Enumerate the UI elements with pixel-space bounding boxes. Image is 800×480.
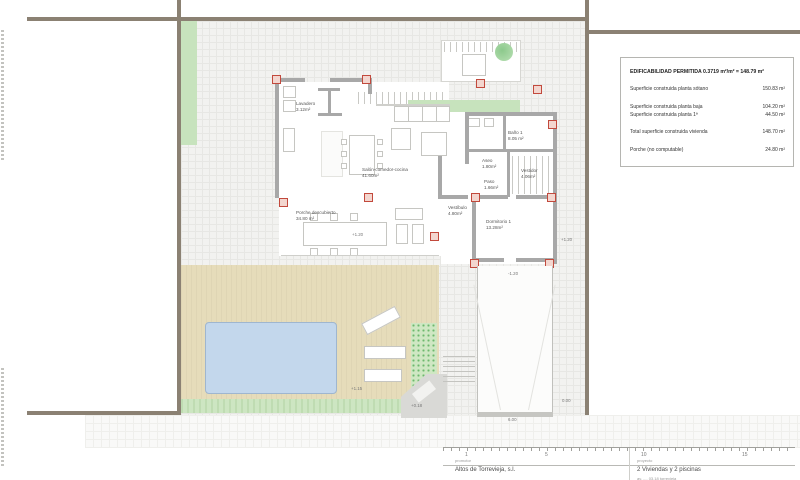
- house-wall: [440, 195, 468, 199]
- room-name: Vestidor: [521, 168, 538, 174]
- pillar-marker: [547, 193, 556, 202]
- info-label: Superficie construida planta baja: [630, 104, 703, 110]
- scale-tick-label: 15: [742, 452, 748, 458]
- chair: [341, 163, 347, 169]
- house-wall: [465, 112, 557, 116]
- room-label: Porche descubierto34.80 m²: [296, 210, 336, 221]
- pillar-marker: [272, 75, 281, 84]
- info-value: 24.80 m²: [765, 147, 785, 153]
- kitchen-island: [391, 128, 411, 150]
- room-area: 34.80 m²: [296, 216, 336, 222]
- planting-strip-left: [181, 21, 197, 145]
- house-wall: [553, 112, 557, 264]
- exterior-stairs: [443, 356, 475, 386]
- pillar-marker: [279, 198, 288, 207]
- info-value: 150.83 m²: [762, 86, 785, 92]
- info-row: Superficie construida planta 1ª44.50 m²: [630, 112, 785, 118]
- margin-stamp-top: [1, 28, 4, 160]
- info-row: Porche (no computable)24.80 m²: [630, 147, 785, 153]
- info-box-title: EDIFICABILIDAD PERMITIDA 0.3719 m²/m² = …: [630, 69, 785, 75]
- room-label: Baño 18.05 m²: [508, 130, 524, 141]
- room-name: Salón-comedor-cocina: [362, 167, 408, 173]
- bath-fixture: [484, 118, 494, 127]
- pillar-marker: [471, 193, 480, 202]
- info-label: Superficie construida planta 1ª: [630, 112, 698, 118]
- lounge-chair: [396, 224, 408, 244]
- room-name: Dormitorio 1: [486, 219, 511, 225]
- porch-edge: [281, 255, 439, 256]
- buildability-info-box: EDIFICABILIDAD PERMITIDA 0.3719 m²/m² = …: [620, 57, 794, 167]
- level-annotation: +1.15: [351, 386, 362, 391]
- room-label: Dormitorio 113.28m²: [486, 219, 511, 230]
- porch-table: [303, 222, 387, 246]
- floor-plan-sheet: Lavadero3.12m² Salón-comedor-cocina41.60…: [0, 0, 800, 480]
- info-row: Superficie construida planta sótano150.8…: [630, 86, 785, 92]
- info-value: 148.70 m²: [762, 129, 785, 135]
- boundary-wall: [181, 17, 589, 21]
- room-name: Porche descubierto: [296, 210, 336, 216]
- room-label: Vestíbulo4.80m²: [448, 205, 467, 216]
- room-name: Lavadero: [296, 101, 315, 107]
- room-area: 8.05 m²: [508, 136, 524, 142]
- margin-stamp-bottom: [1, 368, 4, 466]
- boundary-wall: [177, 0, 181, 415]
- level-annotation: +0.18: [411, 403, 422, 408]
- boundary-wall: [585, 0, 589, 415]
- lounge-table: [395, 208, 423, 220]
- info-row: Total superficie construida vivienda148.…: [630, 129, 785, 135]
- info-row: Superficie construida planta baja104.20 …: [630, 104, 785, 110]
- sofa: [421, 132, 447, 156]
- chair: [377, 139, 383, 145]
- chair: [377, 151, 383, 157]
- dryer: [283, 100, 296, 112]
- title-block-rule: [630, 465, 795, 466]
- room-label: Paso1.66m²: [484, 179, 498, 190]
- project-address: av. ..., 03.18 torrevieja: [637, 476, 676, 480]
- street-paving: [85, 415, 800, 448]
- level-annotation: +1.20: [352, 232, 363, 237]
- room-area: 4.06m²: [521, 174, 538, 180]
- sun-lounger: [364, 369, 402, 382]
- terrace-table: [462, 54, 486, 76]
- level-annotation: -1.20: [508, 271, 518, 276]
- washer: [283, 86, 296, 98]
- boundary-wall: [27, 411, 178, 415]
- room-label: Salón-comedor-cocina41.60m²: [362, 167, 408, 178]
- grass-strip: [181, 399, 439, 413]
- room-label: Lavadero3.12m²: [296, 101, 315, 112]
- room-name: Baño 1: [508, 130, 524, 136]
- house-wall: [467, 149, 555, 152]
- kitchen-counter: [394, 106, 450, 122]
- pillar-marker: [548, 120, 557, 129]
- swimming-pool: [205, 322, 337, 394]
- info-value: 104.20 m²: [762, 104, 785, 110]
- chair: [341, 139, 347, 145]
- room-area: 1.66m²: [484, 185, 498, 191]
- room-area: 4.80m²: [448, 211, 467, 217]
- room-label: Aseo1.80m²: [482, 158, 496, 169]
- info-label: Superficie construida planta sótano: [630, 86, 708, 92]
- boundary-wall: [27, 17, 178, 21]
- house-wall: [275, 82, 279, 198]
- level-annotation: 0.00: [562, 398, 571, 403]
- pillar-marker: [364, 193, 373, 202]
- pillar-marker: [430, 232, 439, 241]
- tree-icon: [495, 43, 513, 61]
- pillar-marker: [533, 85, 542, 94]
- project-label: proyecto: [637, 458, 652, 463]
- scale-tick-label: 5: [545, 452, 548, 458]
- promoter-name: Altos de Torrevieja, s.l.: [455, 467, 515, 473]
- info-label: Porche (no computable): [630, 147, 683, 153]
- room-name: Vestíbulo: [448, 205, 467, 211]
- house-wall: [328, 91, 331, 115]
- house-wall: [503, 116, 506, 149]
- lounge-chair: [412, 224, 424, 244]
- house-wall: [465, 116, 469, 164]
- bath-fixture: [468, 118, 480, 127]
- title-block-rule: [443, 465, 629, 466]
- info-value: 44.50 m²: [765, 112, 785, 118]
- house-wall: [472, 199, 476, 259]
- room-label: Vestidor4.06m²: [521, 168, 538, 179]
- room-area: 13.28m²: [486, 225, 511, 231]
- sun-lounger: [364, 346, 406, 359]
- house-wall: [438, 156, 442, 199]
- driveway: [477, 266, 553, 414]
- pillar-marker: [476, 79, 485, 88]
- level-annotation: +1.20: [561, 237, 572, 242]
- house-wall: [318, 113, 342, 116]
- dimension-annotation: 6.00: [508, 417, 517, 422]
- room-area: 1.80m²: [482, 164, 496, 170]
- room-area: 41.60m²: [362, 173, 408, 179]
- cabinet: [283, 128, 295, 152]
- chair: [341, 151, 347, 157]
- rug: [321, 131, 343, 177]
- title-block-divider: [629, 448, 630, 480]
- promoter-label: promotor: [455, 458, 471, 463]
- pillar-marker: [362, 75, 371, 84]
- room-area: 3.12m²: [296, 107, 315, 113]
- info-label: Total superficie construida vivienda: [630, 129, 708, 135]
- boundary-wall: [589, 30, 800, 34]
- house-wall: [507, 152, 510, 197]
- house-wall: [376, 104, 450, 106]
- chair: [350, 213, 358, 221]
- project-name: 2 Viviendas y 2 piscinas: [637, 467, 701, 473]
